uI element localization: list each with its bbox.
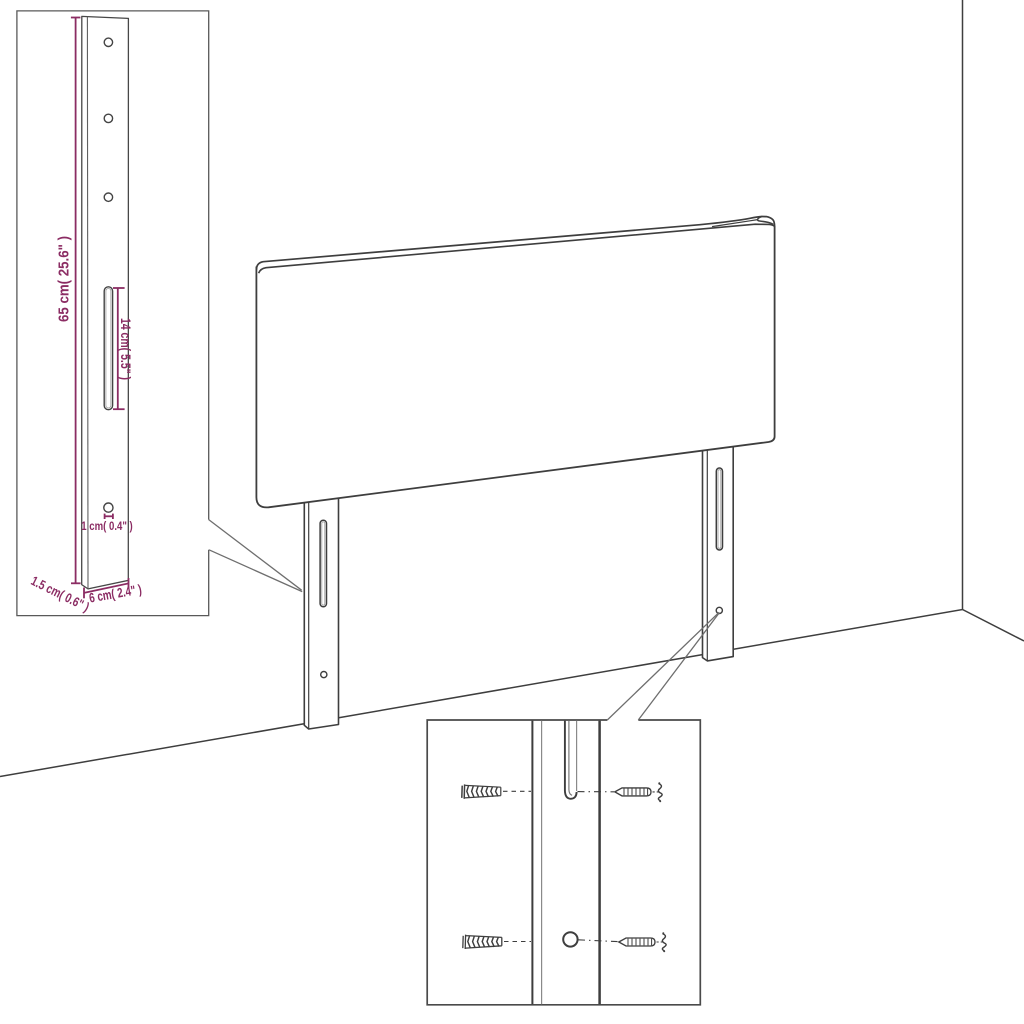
svg-text:65 cm( 25.6" ): 65 cm( 25.6" ) xyxy=(56,236,73,322)
svg-text:1 cm( 0.4" ): 1 cm( 0.4" ) xyxy=(81,519,133,533)
svg-text:14 cm( 5.5" ): 14 cm( 5.5" ) xyxy=(118,318,134,380)
